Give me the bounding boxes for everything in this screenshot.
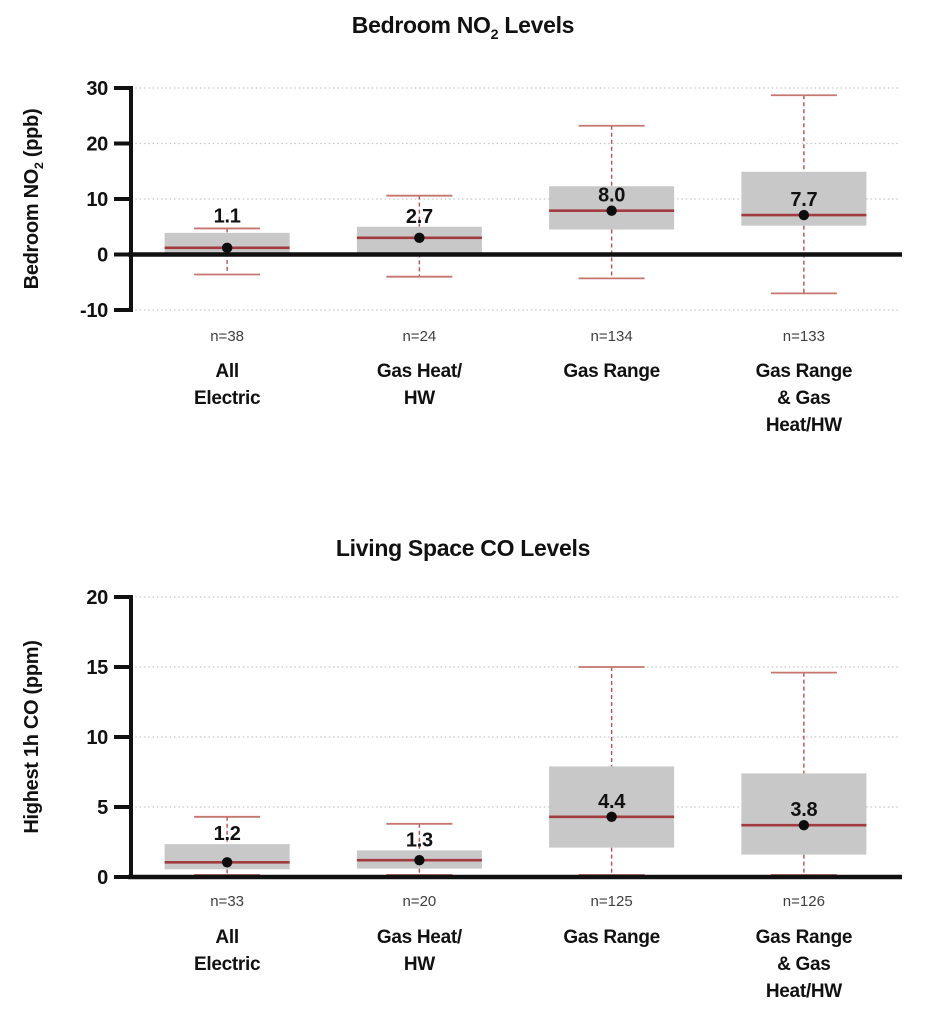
value-label: 3.8 xyxy=(790,799,817,821)
y-tick-label: 30 xyxy=(86,78,108,100)
y-tick-label: 20 xyxy=(86,134,108,156)
mean-dot xyxy=(799,210,809,220)
y-tick-label: 10 xyxy=(86,189,108,211)
mean-dot xyxy=(799,820,809,830)
category-label: Gas Range xyxy=(756,927,853,948)
y-tick-label: 5 xyxy=(97,797,108,819)
n-count-label: n=20 xyxy=(402,893,436,910)
category-label: HW xyxy=(404,954,435,975)
category-label: Gas Range xyxy=(756,361,853,382)
category-label: HW xyxy=(404,388,435,409)
n-count-label: n=33 xyxy=(210,893,244,910)
category-label: Gas Heat/ xyxy=(377,361,463,382)
value-label: 2.7 xyxy=(406,206,433,228)
value-label: 1.2 xyxy=(214,823,241,845)
category-label: All xyxy=(215,361,238,382)
y-tick-label: 10 xyxy=(86,727,108,749)
mean-dot xyxy=(414,233,424,243)
category-label: Gas Range xyxy=(563,361,660,382)
mean-dot xyxy=(222,857,232,867)
category-label: Electric xyxy=(194,388,261,409)
category-label: Heat/HW xyxy=(766,415,842,436)
n-count-label: n=133 xyxy=(783,328,825,345)
category-label: & Gas xyxy=(777,388,830,409)
category-label: Electric xyxy=(194,954,261,975)
y-tick-label: 0 xyxy=(97,245,108,267)
category-label: Gas Heat/ xyxy=(377,927,463,948)
category-label: & Gas xyxy=(777,954,830,975)
mean-dot xyxy=(222,243,232,253)
y-axis-title: Bedroom NO2 (ppb) xyxy=(21,109,46,290)
chart-title: Bedroom NO2 Levels xyxy=(352,12,574,43)
category-label: Gas Range xyxy=(563,927,660,948)
n-count-label: n=126 xyxy=(783,893,825,910)
chart-title: Living Space CO Levels xyxy=(336,535,590,561)
y-tick-label: 0 xyxy=(97,867,108,889)
n-count-label: n=125 xyxy=(591,893,633,910)
n-count-label: n=134 xyxy=(591,328,633,345)
chart-canvas: 1.12.78.07.73020100-10Bedroom NO2 (ppb)B… xyxy=(0,0,927,1024)
y-axis-title: Highest 1h CO (ppm) xyxy=(21,640,43,833)
value-label: 1.3 xyxy=(406,829,433,851)
value-label: 4.4 xyxy=(598,791,626,813)
category-label: All xyxy=(215,927,238,948)
mean-dot xyxy=(414,855,424,865)
mean-dot xyxy=(606,205,616,215)
value-label: 8.0 xyxy=(598,185,625,207)
value-label: 1.1 xyxy=(214,205,241,227)
n-count-label: n=38 xyxy=(210,328,244,345)
n-count-label: n=24 xyxy=(402,328,436,345)
category-label: Heat/HW xyxy=(766,981,842,1002)
y-tick-label: -10 xyxy=(80,300,108,322)
y-tick-label: 15 xyxy=(86,657,108,679)
y-tick-label: 20 xyxy=(86,587,108,609)
value-label: 7.7 xyxy=(790,189,817,211)
boxplot-figure: 1.12.78.07.73020100-10Bedroom NO2 (ppb)B… xyxy=(0,0,927,1024)
mean-dot xyxy=(606,812,616,822)
